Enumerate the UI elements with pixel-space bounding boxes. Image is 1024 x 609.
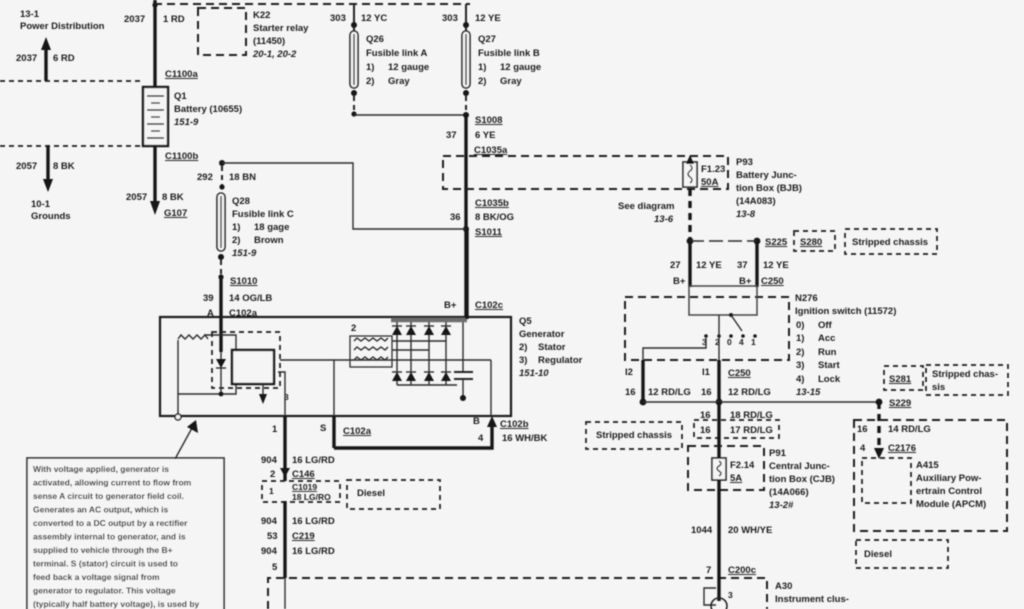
svg-text:303: 303 — [442, 13, 458, 24]
svg-text:37: 37 — [737, 260, 748, 271]
svg-text:Auxiliary Pow-: Auxiliary Pow- — [916, 473, 981, 484]
svg-text:14 RD/LG: 14 RD/LG — [888, 424, 931, 435]
svg-text:assembly internal to generator: assembly internal to generator, and is — [33, 532, 186, 542]
svg-text:8 BK/OG: 8 BK/OG — [475, 212, 514, 223]
svg-text:12 RD/LG: 12 RD/LG — [728, 387, 771, 398]
svg-text:Gray: Gray — [500, 76, 522, 87]
svg-text:16: 16 — [701, 387, 712, 398]
svg-text:C2176: C2176 — [888, 443, 916, 454]
svg-text:Generator: Generator — [519, 329, 565, 340]
svg-text:2: 2 — [351, 323, 356, 334]
svg-text:4: 4 — [478, 433, 484, 444]
svg-text:13-1: 13-1 — [20, 9, 40, 20]
svg-text:B+: B+ — [673, 276, 686, 287]
svg-text:Ignition switch (11572): Ignition switch (11572) — [795, 306, 896, 317]
svg-text:16: 16 — [857, 424, 868, 435]
svg-text:activated, allowing current to: activated, allowing current to flow from — [33, 478, 192, 488]
svg-text:F1.23: F1.23 — [701, 164, 725, 175]
svg-text:C1035a: C1035a — [474, 145, 508, 156]
svg-text:C200c: C200c — [728, 565, 756, 576]
svg-text:1: 1 — [751, 337, 756, 347]
svg-text:feed back a voltage signal fro: feed back a voltage signal from — [33, 572, 160, 582]
svg-text:17 RD/LG: 17 RD/LG — [730, 425, 773, 436]
svg-text:Q5: Q5 — [519, 316, 532, 327]
svg-text:With voltage applied, generato: With voltage applied, generator is — [33, 464, 169, 474]
svg-text:Start: Start — [818, 360, 840, 371]
svg-text:C146: C146 — [292, 469, 315, 480]
svg-text:0): 0) — [796, 320, 804, 331]
svg-text:Q1: Q1 — [174, 91, 187, 102]
svg-text:151-10: 151-10 — [519, 368, 549, 379]
svg-text:terminal. S (stator) circuit: terminal. S (stator) circuit is used to — [33, 559, 178, 569]
svg-text:50A: 50A — [701, 177, 719, 188]
svg-text:(14A083): (14A083) — [736, 196, 776, 207]
svg-text:10-1: 10-1 — [31, 199, 51, 210]
svg-text:S280: S280 — [800, 237, 822, 248]
svg-text:S1011: S1011 — [475, 227, 503, 238]
svg-text:C102b: C102b — [500, 419, 529, 430]
svg-text:16 LG/RD: 16 LG/RD — [292, 516, 335, 527]
svg-text:27: 27 — [670, 260, 681, 271]
svg-text:(14A066): (14A066) — [769, 487, 809, 498]
svg-text:12 YC: 12 YC — [361, 13, 387, 24]
svg-text:12 YE: 12 YE — [475, 13, 501, 24]
svg-text:Stator: Stator — [538, 342, 566, 353]
svg-text:12 YE: 12 YE — [763, 260, 789, 271]
svg-text:ertrain Control: ertrain Control — [916, 486, 982, 497]
svg-text:2037: 2037 — [124, 14, 145, 25]
svg-text:2057: 2057 — [126, 192, 147, 203]
svg-text:Fusible link A: Fusible link A — [366, 48, 428, 59]
svg-text:Starter relay: Starter relay — [253, 23, 309, 34]
svg-text:sis: sis — [932, 382, 945, 393]
svg-text:C1100b: C1100b — [165, 151, 198, 162]
svg-text:S1010: S1010 — [230, 276, 257, 287]
svg-text:Fusible link B: Fusible link B — [478, 48, 540, 59]
svg-text:Instrument clus-: Instrument clus- — [775, 594, 849, 605]
svg-text:S281: S281 — [889, 374, 912, 385]
svg-text:1): 1) — [478, 62, 486, 73]
svg-text:1: 1 — [269, 486, 274, 496]
svg-text:2: 2 — [270, 469, 275, 480]
svg-text:8 BK: 8 BK — [53, 161, 75, 172]
svg-text:(11450): (11450) — [253, 36, 285, 47]
svg-text:13-6: 13-6 — [654, 214, 674, 225]
svg-text:Generates an AC output, which: Generates an AC output, which is — [33, 505, 169, 515]
svg-text:6 YE: 6 YE — [475, 130, 495, 141]
svg-text:converted to a DC output by a: converted to a DC output by a rectifier — [33, 518, 188, 528]
svg-text:N276: N276 — [795, 293, 818, 304]
svg-text:1): 1) — [366, 62, 374, 73]
svg-text:6 RD: 6 RD — [53, 53, 75, 64]
svg-text:Q28: Q28 — [232, 196, 250, 207]
svg-text:S225: S225 — [765, 237, 788, 248]
svg-text:16: 16 — [700, 425, 711, 436]
svg-text:C1035b: C1035b — [475, 198, 509, 209]
svg-text:Battery (10655): Battery (10655) — [174, 104, 242, 115]
svg-text:C102a: C102a — [343, 426, 372, 437]
svg-text:C1100a: C1100a — [165, 69, 198, 80]
svg-text:Central Junc-: Central Junc- — [769, 461, 830, 472]
svg-text:904: 904 — [261, 516, 278, 527]
svg-text:I1: I1 — [702, 367, 711, 378]
svg-text:904: 904 — [261, 546, 278, 557]
svg-text:Diesel: Diesel — [357, 488, 385, 499]
svg-text:292: 292 — [197, 172, 213, 183]
svg-text:13-8: 13-8 — [736, 209, 756, 220]
svg-text:12 gauge: 12 gauge — [500, 62, 541, 73]
svg-text:G107: G107 — [164, 208, 187, 219]
svg-text:2): 2) — [232, 235, 240, 246]
svg-text:Grounds: Grounds — [31, 211, 71, 222]
svg-text:Power Distribution: Power Distribution — [20, 21, 105, 32]
svg-text:tion Box (CJB): tion Box (CJB) — [769, 474, 835, 485]
svg-text:Module (APCM): Module (APCM) — [916, 499, 986, 510]
svg-text:1044: 1044 — [691, 525, 713, 536]
svg-text:C1019: C1019 — [292, 482, 317, 492]
svg-text:39: 39 — [203, 293, 214, 304]
svg-text:2): 2) — [796, 347, 804, 358]
svg-text:12 YE: 12 YE — [696, 260, 722, 271]
svg-text:Diesel: Diesel — [864, 549, 892, 560]
svg-text:4: 4 — [739, 337, 744, 347]
svg-text:2): 2) — [366, 76, 374, 87]
svg-text:4: 4 — [860, 443, 866, 454]
svg-text:20-1, 20-2: 20-1, 20-2 — [252, 49, 297, 60]
svg-text:P91: P91 — [769, 448, 787, 459]
svg-text:Acc: Acc — [818, 333, 835, 344]
svg-text:Stripped chassis: Stripped chassis — [596, 430, 672, 441]
svg-text:0: 0 — [727, 337, 732, 347]
svg-text:4): 4) — [796, 374, 804, 385]
svg-text:C219: C219 — [292, 531, 315, 542]
svg-text:S: S — [320, 423, 326, 434]
svg-text:Stripped chas-: Stripped chas- — [932, 369, 998, 380]
svg-text:1: 1 — [272, 424, 278, 435]
svg-text:Gray: Gray — [388, 76, 410, 87]
svg-text:16 LG/RD: 16 LG/RD — [292, 546, 335, 557]
svg-text:53: 53 — [267, 531, 278, 542]
svg-text:13-2#: 13-2# — [769, 500, 794, 511]
svg-text:1): 1) — [232, 222, 240, 233]
svg-text:sense A circuit to generator f: sense A circuit to generator field coil. — [33, 491, 184, 501]
svg-text:2): 2) — [519, 342, 527, 353]
svg-text:1 RD: 1 RD — [163, 14, 185, 25]
svg-text:8 BK: 8 BK — [162, 192, 184, 203]
svg-text:5: 5 — [272, 562, 278, 573]
svg-text:2037: 2037 — [16, 53, 37, 64]
svg-text:18 BN: 18 BN — [229, 172, 256, 183]
svg-text:13-15: 13-15 — [796, 387, 821, 398]
svg-text:37: 37 — [446, 130, 457, 141]
svg-text:B: B — [473, 416, 480, 427]
svg-text:303: 303 — [330, 13, 346, 24]
svg-text:supplied to vehicle through th: supplied to vehicle through the B+ — [33, 545, 173, 555]
svg-text:C102c: C102c — [475, 300, 503, 311]
svg-text:K22: K22 — [253, 10, 270, 21]
svg-text:Q27: Q27 — [478, 34, 496, 45]
svg-text:151-9: 151-9 — [232, 248, 257, 259]
svg-text:F2.14: F2.14 — [730, 460, 755, 471]
svg-text:Off: Off — [818, 320, 833, 331]
svg-text:2): 2) — [478, 76, 486, 87]
svg-text:generator to regulator. This v: generator to regulator. This voltage — [33, 586, 176, 596]
svg-text:16: 16 — [625, 387, 636, 398]
svg-text:18 gage: 18 gage — [254, 222, 289, 233]
svg-text:5A: 5A — [730, 473, 742, 484]
svg-text:S1008: S1008 — [475, 115, 502, 126]
svg-text:Stripped chassis: Stripped chassis — [852, 237, 928, 248]
svg-text:20 WH/YE: 20 WH/YE — [728, 525, 772, 536]
svg-text:Regulator: Regulator — [538, 355, 583, 366]
svg-text:Lock: Lock — [818, 374, 841, 385]
svg-text:12 gauge: 12 gauge — [388, 62, 429, 73]
svg-text:12 RD/LG: 12 RD/LG — [648, 387, 691, 398]
svg-text:Fusible link C: Fusible link C — [232, 209, 294, 220]
svg-text:Battery Junc-: Battery Junc- — [736, 170, 797, 181]
svg-text:14 OG/LB: 14 OG/LB — [229, 293, 272, 304]
svg-text:151-9: 151-9 — [174, 117, 199, 128]
svg-text:I2: I2 — [625, 367, 633, 378]
svg-text:tion Box (BJB): tion Box (BJB) — [736, 183, 802, 194]
svg-text:C250: C250 — [728, 368, 751, 379]
svg-text:3): 3) — [796, 360, 804, 371]
svg-text:3: 3 — [728, 590, 733, 600]
svg-text:16 WH/BK: 16 WH/BK — [502, 433, 548, 444]
svg-text:3): 3) — [519, 355, 527, 366]
svg-text:Run: Run — [818, 347, 837, 358]
svg-text:Q26: Q26 — [366, 34, 384, 45]
svg-text:2057: 2057 — [16, 161, 37, 172]
svg-text:C250: C250 — [761, 276, 784, 287]
svg-text:Brown: Brown — [254, 235, 284, 246]
svg-text:904: 904 — [261, 455, 278, 466]
svg-text:16 LG/RD: 16 LG/RD — [292, 455, 335, 466]
svg-text:S229: S229 — [889, 398, 911, 409]
svg-text:1): 1) — [796, 333, 804, 344]
svg-text:7: 7 — [706, 565, 711, 576]
svg-text:(typically half battery voltag: (typically half battery voltage), is use… — [33, 599, 200, 609]
svg-text:36: 36 — [450, 212, 461, 223]
svg-text:P93: P93 — [736, 157, 753, 168]
svg-text:See diagram: See diagram — [618, 201, 675, 212]
svg-text:A415: A415 — [916, 460, 939, 471]
svg-text:B+: B+ — [444, 300, 457, 311]
svg-text:18 LG/RO: 18 LG/RO — [292, 492, 331, 502]
svg-text:A30: A30 — [775, 581, 792, 592]
